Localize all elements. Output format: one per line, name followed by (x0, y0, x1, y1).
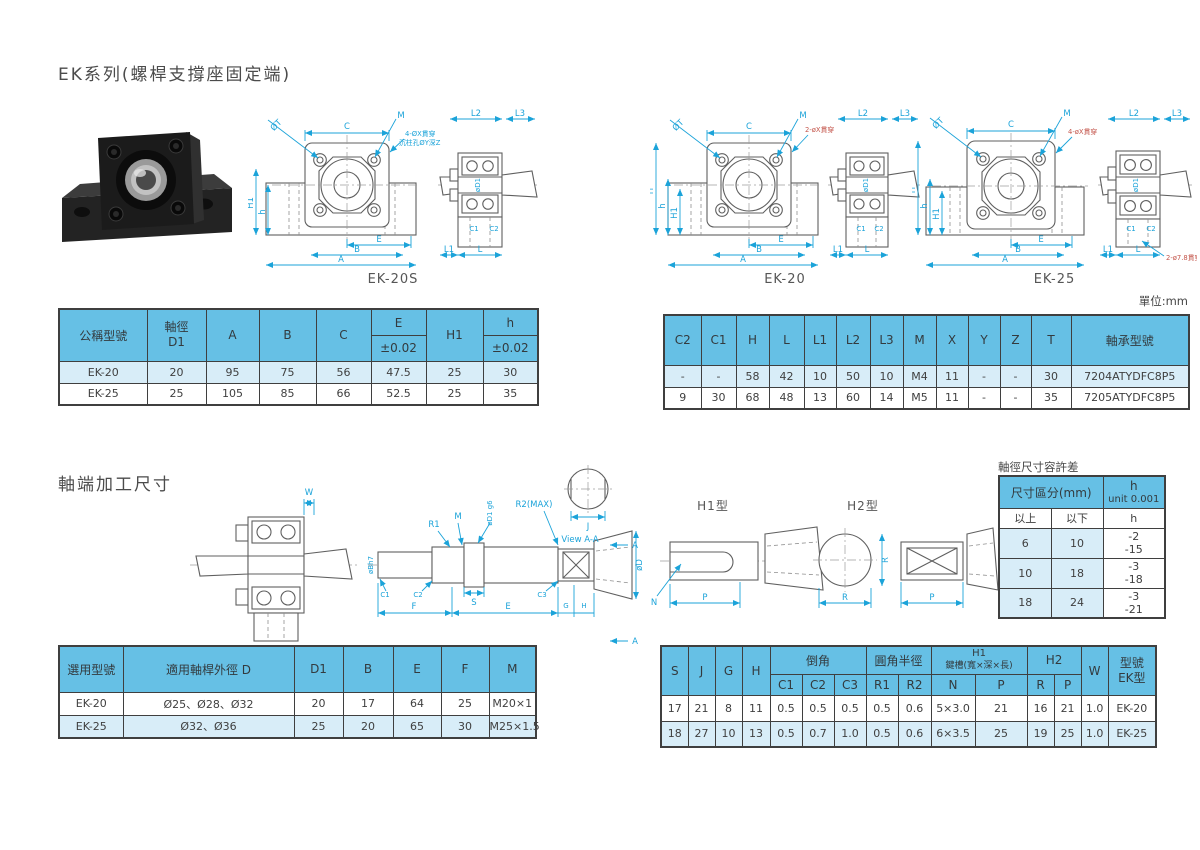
cell: 30 (701, 387, 736, 409)
cell: 48 (769, 387, 804, 409)
dim-l1: L1 (833, 245, 843, 255)
cell: 66 (316, 383, 371, 405)
th-T: T (1031, 315, 1071, 365)
cell: EK-20 (59, 361, 147, 383)
cell: 10 (1051, 528, 1103, 558)
dim-c1: C1 (856, 225, 865, 233)
cell: Ø25、Ø28、Ø32 (123, 692, 294, 715)
cell: 10 (870, 365, 903, 387)
dim-l1: L1 (444, 245, 454, 255)
table-row: EK-202095755647.52530 (59, 361, 538, 383)
dimension-table-secondary: C2 C1 H L L1 L2 L3 M X Y Z T 軸承型號 --5842… (663, 314, 1190, 410)
cell: -3-21 (1103, 588, 1165, 618)
table-row: 18 24 -3-21 (999, 588, 1165, 618)
dim-h: h (920, 203, 930, 208)
dim-e: E (505, 602, 510, 612)
cell: - (1000, 365, 1031, 387)
th-Z: Z (1000, 315, 1031, 365)
cell: 21 (975, 695, 1027, 721)
dim-h: h (258, 209, 268, 214)
th-H: H (736, 315, 769, 365)
th-h-unit: hunit 0.001 (1103, 476, 1165, 508)
cell: 10 (715, 721, 742, 747)
shaft-machining-drawing: W øBh7 R1 M øD1 g6 R2(MAX) C1 C2 (190, 455, 645, 655)
table-row: EK-2525105856652.52535 (59, 383, 538, 405)
th-p1: P (975, 674, 1027, 695)
cell: 20 (147, 361, 206, 383)
dim-dd: øD (635, 559, 645, 571)
cell: 8 (715, 695, 742, 721)
th-c2: C2 (802, 674, 834, 695)
tolerance-table-title: 軸徑尺寸容許差 (998, 459, 1079, 475)
dim-l1: L1 (1103, 245, 1113, 255)
cell: 25 (147, 383, 206, 405)
catalog-page: EK系列(螺桿支撐座固定端) 軸端加工尺寸 單位:mm 軸徑尺寸容許差 (0, 0, 1200, 850)
dim-l: L (865, 245, 870, 255)
cell: 25 (441, 692, 489, 715)
dim-l3: L3 (1172, 109, 1182, 119)
cell: 21 (1054, 695, 1081, 721)
dim-bh7: øBh7 (367, 556, 375, 574)
cell: 0.5 (866, 721, 898, 747)
cell: 42 (769, 365, 804, 387)
cell: 20 (294, 692, 343, 715)
shaft-end-types-drawing: H1型 N P H2型 R R (645, 490, 1000, 625)
table-row: 10 18 -3-18 (999, 558, 1165, 588)
drawing-caption-ek20s: EK-20S (248, 272, 538, 287)
drawing-ek20s: C M ØT 4-ØX貫穿 沉柱孔ØY深Z H1 h E B A (248, 105, 538, 275)
th-b: B (343, 646, 393, 692)
cell: 58 (736, 365, 769, 387)
note-through-holes: 4-øX貫穿 (1068, 127, 1097, 136)
cell: 50 (836, 365, 870, 387)
th-h: H (742, 646, 770, 695)
dim-b: B (354, 245, 360, 255)
cell: 30 (441, 715, 489, 738)
cell: 11 (936, 387, 968, 409)
th-n: N (931, 674, 975, 695)
th-M: M (903, 315, 936, 365)
page-title: EK系列(螺桿支撐座固定端) (58, 60, 291, 85)
dim-r2max: R2(MAX) (516, 500, 553, 510)
cell: M4 (903, 365, 936, 387)
cell: 1.0 (1081, 721, 1108, 747)
th-d1: D1 (294, 646, 343, 692)
cell: M5 (903, 387, 936, 409)
dim-p: P (929, 593, 934, 603)
dim-d1g6: øD1 g6 (486, 500, 494, 526)
th-r: R (1027, 674, 1054, 695)
dim-m: M (799, 111, 806, 121)
th-shaft-dia: 軸徑D1 (147, 309, 206, 361)
cell: EK-25 (59, 715, 123, 738)
cell: 25 (426, 361, 483, 383)
table-row: EK-20Ø25、Ø28、Ø3220176425M20×1 (59, 692, 536, 715)
th-e: E (393, 646, 441, 692)
cell: 21 (688, 695, 715, 721)
cell: 0.5 (802, 695, 834, 721)
cell: - (1000, 387, 1031, 409)
cell: 75 (259, 361, 316, 383)
dim-e: E (778, 235, 783, 245)
th-selected-model: 選用型號 (59, 646, 123, 692)
dim-r-vertical: R (881, 557, 891, 563)
dim-c: C (746, 122, 752, 132)
cell: 24 (1051, 588, 1103, 618)
dim-m: M (454, 512, 461, 522)
note-through-holes: 4-ØX貫穿 (405, 129, 436, 138)
th-size-range: 尺寸區分(mm) (999, 476, 1103, 508)
dim-c1: C1 (469, 225, 478, 233)
cell: M20×1 (489, 692, 536, 715)
th-w: W (1081, 646, 1108, 695)
th-e: E±0.02 (371, 309, 426, 361)
th-r1: R1 (866, 674, 898, 695)
dim-c1: C1 (380, 591, 389, 599)
th-m: M (489, 646, 536, 692)
cell: 13 (804, 387, 836, 409)
cell: 11 (742, 695, 770, 721)
cell: - (968, 387, 1000, 409)
cell: 16 (1027, 695, 1054, 721)
dim-d1: øD1 (474, 178, 482, 192)
th-j: J (688, 646, 715, 695)
dim-l2: L2 (471, 109, 481, 119)
cell: 1.0 (1081, 695, 1108, 721)
drawing-ek25: C M ØT 4-øX貫穿 H h H1 E B A (912, 105, 1197, 275)
section-arrow-a-top: A (632, 541, 638, 551)
dim-c: C (344, 122, 350, 132)
cell: 19 (1027, 721, 1054, 747)
h2-type-label: H2型 (847, 499, 879, 513)
cell: 11 (936, 365, 968, 387)
view-aa-label: View A-A (561, 535, 598, 545)
drawing-caption-ek25: EK-25 (912, 272, 1197, 287)
cell: EK-20 (59, 692, 123, 715)
dim-a: A (740, 255, 746, 265)
cell: 27 (688, 721, 715, 747)
dim-j: J (586, 522, 590, 532)
shaft-profile-view: øBh7 R1 M øD1 g6 R2(MAX) C1 C2 S C3 F E … (367, 465, 645, 647)
cell: 18 (1051, 558, 1103, 588)
cell: EK-25 (1108, 721, 1156, 747)
th-L2: L2 (836, 315, 870, 365)
h2-type-view: H2型 R R P (813, 499, 998, 608)
note-counterbore: 沉柱孔ØY深Z (399, 138, 441, 147)
th-h1-keyway: H1鍵槽(寬×深×長) (931, 646, 1027, 674)
cell: - (701, 365, 736, 387)
front-view: C M ØT 4-øX貫穿 H h H1 E B A (912, 109, 1097, 265)
cell: 以上 (999, 508, 1051, 528)
th-c1: C1 (770, 674, 802, 695)
cell: 14 (870, 387, 903, 409)
th-a: A (206, 309, 259, 361)
drawing-ek20: C M ØT 2-øX貫穿 H h H1 E B A (650, 105, 920, 275)
bearing-section-view: W (190, 488, 360, 641)
th-bearing-model: 軸承型號 (1071, 315, 1189, 365)
dim-d1: øD1 (862, 178, 870, 192)
table-row: --5842105010M411--307204ATYDFC8P5 (664, 365, 1189, 387)
cell: 9 (664, 387, 701, 409)
dim-H: H (650, 188, 656, 194)
cell: 18 (999, 588, 1051, 618)
cell: 7205ATYDFC8P5 (1071, 387, 1189, 409)
cell: - (664, 365, 701, 387)
tolerance-table: 尺寸區分(mm) hunit 0.001 以上 以下 h 6 10 -2-15 … (998, 475, 1166, 619)
table-row: EK-25Ø32、Ø3625206530M25×1.5 (59, 715, 536, 738)
dim-e: E (1038, 235, 1043, 245)
cell: 30 (1031, 365, 1071, 387)
th-fillet-radius: 圓角半徑 (866, 646, 931, 674)
dim-l: L (478, 245, 483, 255)
cell: -3-18 (1103, 558, 1165, 588)
cell: 1.0 (834, 721, 866, 747)
h1-type-view: H1型 N P (651, 499, 830, 608)
unit-note: 單位:mm (1058, 293, 1188, 309)
dim-l2: L2 (858, 109, 868, 119)
cell: 25 (294, 715, 343, 738)
cell: 10 (804, 365, 836, 387)
cell: 17 (661, 695, 688, 721)
th-c3: C3 (834, 674, 866, 695)
side-view: L2 L3 øD1 C1 C2 2-ø7.8貫穿 L1 L (1098, 109, 1197, 262)
dim-r-horizontal: R (842, 593, 848, 603)
th-ek-model: 型號EK型 (1108, 646, 1156, 695)
cell: 25 (1054, 721, 1081, 747)
dim-c1: C1 (1126, 225, 1135, 233)
dim-m: M (397, 111, 404, 121)
cell: 47.5 (371, 361, 426, 383)
cell: 85 (259, 383, 316, 405)
dim-c2: C2 (489, 225, 498, 233)
cell: 0.6 (898, 721, 931, 747)
th-h2: H2 (1027, 646, 1081, 674)
cell: 68 (736, 387, 769, 409)
cell: 64 (393, 692, 441, 715)
cell: 35 (1031, 387, 1071, 409)
dim-h1: H1 (670, 207, 680, 219)
side-view: L2 L3 øD1 C1 C2 L1 L (438, 109, 538, 255)
th-L1: L1 (804, 315, 836, 365)
dim-h1: H1 (932, 208, 942, 220)
th-p2: P (1054, 674, 1081, 695)
cell: -2-15 (1103, 528, 1165, 558)
dim-e: E (376, 235, 381, 245)
table-row: 6 10 -2-15 (999, 528, 1165, 558)
dim-a: A (1002, 255, 1008, 265)
dim-c2: C2 (1146, 225, 1155, 233)
cell: Ø32、Ø36 (123, 715, 294, 738)
front-view: C M ØT 4-ØX貫穿 沉柱孔ØY深Z H1 h E B A (248, 111, 441, 265)
dim-c2: C2 (874, 225, 883, 233)
cell: 6×3.5 (931, 721, 975, 747)
cell: 10 (999, 558, 1051, 588)
cell: 6 (999, 528, 1051, 558)
cell: 13 (742, 721, 770, 747)
cell: 25 (975, 721, 1027, 747)
front-view: C M ØT 2-øX貫穿 H h H1 E B A (650, 111, 834, 265)
cell: 7204ATYDFC8P5 (1071, 365, 1189, 387)
dim-c: C (1008, 120, 1014, 130)
dim-h: H (581, 602, 586, 610)
th-Y: Y (968, 315, 1000, 365)
dim-b: B (756, 245, 762, 255)
cell: 105 (206, 383, 259, 405)
th-L3: L3 (870, 315, 903, 365)
dim-f: F (412, 602, 417, 612)
th-h: h±0.02 (483, 309, 538, 361)
th-r2: R2 (898, 674, 931, 695)
th-applicable-shaft-od: 適用軸桿外徑 D (123, 646, 294, 692)
dim-h1: H1 (248, 197, 256, 209)
cell: 25 (426, 383, 483, 405)
dim-c3: C3 (537, 591, 546, 599)
dim-c2: C2 (413, 591, 422, 599)
dim-s: S (471, 598, 476, 608)
cell: 0.5 (770, 721, 802, 747)
cell: 0.6 (898, 695, 931, 721)
section2-title: 軸端加工尺寸 (58, 470, 172, 495)
cell: 65 (393, 715, 441, 738)
dim-d1: øD1 (1132, 178, 1140, 192)
cell: h (1103, 508, 1165, 528)
th-g: G (715, 646, 742, 695)
note-through-holes: 2-øX貫穿 (805, 125, 834, 134)
th-X: X (936, 315, 968, 365)
table-row: 182710130.50.71.00.50.66×3.52519251.0EK-… (661, 721, 1156, 747)
th-c: C (316, 309, 371, 361)
cell: 30 (483, 361, 538, 383)
dim-l: L (1136, 245, 1141, 255)
th-L: L (769, 315, 804, 365)
th-c1: C1 (701, 315, 736, 365)
dim-b: B (1015, 245, 1021, 255)
dim-l3: L3 (515, 109, 525, 119)
cell: 56 (316, 361, 371, 383)
th-c2: C2 (664, 315, 701, 365)
cell: EK-20 (1108, 695, 1156, 721)
cell: 5×3.0 (931, 695, 975, 721)
dim-H: H (912, 187, 918, 193)
h1-type-label: H1型 (697, 499, 729, 513)
cell: 95 (206, 361, 259, 383)
th-b: B (259, 309, 316, 361)
cell: 0.5 (770, 695, 802, 721)
dim-h: h (658, 203, 668, 208)
dim-p: P (702, 593, 707, 603)
table-row: 以上 以下 h (999, 508, 1165, 528)
cell: 以下 (1051, 508, 1103, 528)
cell: 52.5 (371, 383, 426, 405)
th-chamfer: 倒角 (770, 646, 866, 674)
cell: 35 (483, 383, 538, 405)
th-f: F (441, 646, 489, 692)
dimension-table-main: 公稱型號 軸徑D1 A B C E±0.02 H1 h±0.02 EK-2020… (58, 308, 539, 406)
cell: 0.5 (834, 695, 866, 721)
dim-g: G (563, 602, 568, 610)
th-model: 公稱型號 (59, 309, 147, 361)
cell: 60 (836, 387, 870, 409)
cell: M25×1.5 (489, 715, 536, 738)
cell: 20 (343, 715, 393, 738)
table-row: 9306848136014M511--357205ATYDFC8P5 (664, 387, 1189, 409)
table-row: 17218110.50.50.50.50.65×3.02116211.0EK-2… (661, 695, 1156, 721)
section-arrow-a-bottom: A (632, 637, 638, 647)
th-h1: H1 (426, 309, 483, 361)
dim-w: W (305, 488, 314, 498)
cell: - (968, 365, 1000, 387)
product-photo (52, 112, 242, 262)
dim-l2: L2 (1129, 109, 1139, 119)
cell: 0.7 (802, 721, 834, 747)
dim-a: A (338, 255, 344, 265)
dim-r1: R1 (428, 520, 439, 530)
th-s: S (661, 646, 688, 695)
applicable-shaft-table: 選用型號 適用軸桿外徑 D D1 B E F M EK-20Ø25、Ø28、Ø3… (58, 645, 537, 739)
dim-l3: L3 (900, 109, 910, 119)
cell: EK-25 (59, 383, 147, 405)
dim-n: N (651, 598, 657, 608)
side-view: L2 L3 øD1 C1 C2 L1 L (828, 109, 920, 255)
cell: 0.5 (866, 695, 898, 721)
cell: 18 (661, 721, 688, 747)
shaft-end-table: S J G H 倒角 圓角半徑 H1鍵槽(寬×深×長) H2 W 型號EK型 C… (660, 645, 1157, 748)
note-counterbore: 2-ø7.8貫穿 (1166, 253, 1197, 262)
cell: 17 (343, 692, 393, 715)
dim-m: M (1063, 109, 1070, 119)
drawing-caption-ek20: EK-20 (650, 272, 920, 287)
